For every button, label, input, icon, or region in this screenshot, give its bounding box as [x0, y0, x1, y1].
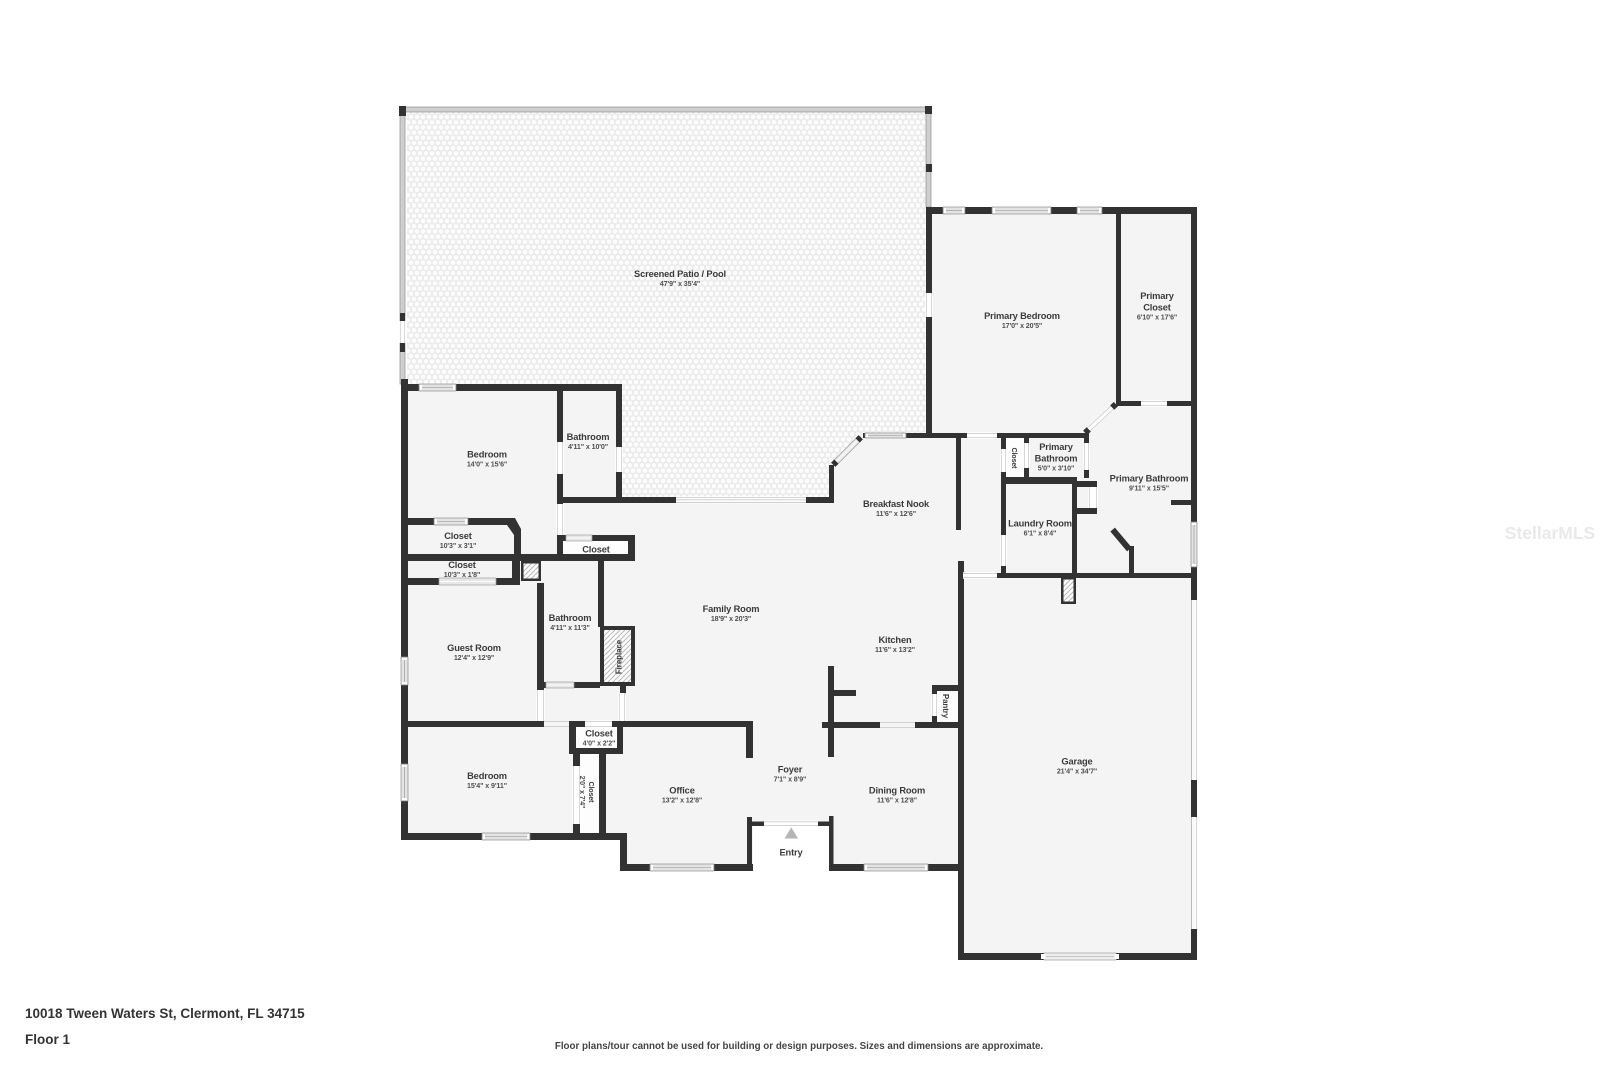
svg-text:5'0" x 3'10": 5'0" x 3'10" [1038, 465, 1075, 473]
svg-text:Closet: Closet [585, 729, 613, 739]
svg-text:Bedroom: Bedroom [467, 450, 507, 460]
svg-text:Kitchen: Kitchen [878, 635, 912, 645]
svg-text:Closet: Closet [582, 545, 610, 555]
svg-text:Closet: Closet [448, 560, 476, 570]
svg-text:Closet: Closet [444, 531, 472, 541]
svg-text:Primary Bathroom: Primary Bathroom [1110, 474, 1189, 484]
svg-text:Bathroom: Bathroom [567, 432, 610, 442]
svg-text:7'1" x 8'9": 7'1" x 8'9" [774, 775, 807, 783]
svg-text:47'9" x 35'4": 47'9" x 35'4" [660, 280, 700, 288]
svg-text:Dining Room: Dining Room [869, 786, 925, 796]
svg-text:14'0" x 15'6": 14'0" x 15'6" [467, 461, 507, 469]
svg-text:Bedroom: Bedroom [467, 771, 507, 781]
svg-text:Primary: Primary [1140, 291, 1175, 301]
svg-text:Closet: Closet [587, 782, 594, 804]
svg-text:18'9" x 20'3": 18'9" x 20'3" [711, 615, 751, 623]
svg-text:Guest Room: Guest Room [447, 643, 501, 653]
svg-text:StellarMLS: StellarMLS [1505, 523, 1595, 543]
svg-text:13'2" x 12'8": 13'2" x 12'8" [662, 797, 702, 805]
svg-text:Family Room: Family Room [703, 604, 760, 614]
svg-text:Screened Patio / Pool: Screened Patio / Pool [634, 269, 726, 279]
svg-text:15'4" x 9'11": 15'4" x 9'11" [467, 782, 507, 790]
svg-text:Breakfast Nook: Breakfast Nook [863, 499, 930, 509]
svg-text:6'1" x 8'4": 6'1" x 8'4" [1024, 529, 1057, 537]
svg-text:Foyer: Foyer [778, 764, 803, 774]
svg-text:Laundry Room: Laundry Room [1008, 518, 1072, 528]
svg-text:Pantry: Pantry [941, 694, 950, 719]
svg-text:10'3" x 1'8": 10'3" x 1'8" [444, 571, 481, 579]
svg-text:11'6" x 12'6": 11'6" x 12'6" [876, 510, 916, 518]
svg-text:17'0" x 20'5": 17'0" x 20'5" [1002, 322, 1042, 330]
svg-text:Bathroom: Bathroom [1035, 454, 1078, 464]
svg-text:4'0" x 2'2": 4'0" x 2'2" [583, 740, 616, 748]
svg-text:Floor 1: Floor 1 [25, 1032, 70, 1047]
svg-text:11'6" x 13'2": 11'6" x 13'2" [875, 646, 915, 654]
svg-text:10018 Tween Waters St, Clermon: 10018 Tween Waters St, Clermont, FL 3471… [25, 1006, 305, 1021]
svg-text:Fireplace: Fireplace [615, 639, 624, 674]
svg-text:2'0" x 7'4": 2'0" x 7'4" [578, 776, 586, 809]
svg-text:4'11" x 10'0": 4'11" x 10'0" [568, 443, 608, 451]
svg-text:6'10" x 17'6": 6'10" x 17'6" [1137, 314, 1177, 322]
svg-text:Bathroom: Bathroom [549, 613, 592, 623]
svg-text:12'4" x 12'9": 12'4" x 12'9" [454, 654, 494, 662]
svg-text:Entry: Entry [779, 848, 803, 858]
svg-text:Office: Office [669, 786, 694, 796]
svg-text:Primary Bedroom: Primary Bedroom [984, 311, 1060, 321]
svg-text:10'3" x 3'1": 10'3" x 3'1" [440, 542, 477, 550]
svg-text:Closet: Closet [1010, 448, 1017, 470]
svg-text:9'11" x 15'5": 9'11" x 15'5" [1129, 485, 1169, 493]
svg-text:Floor plans/tour cannot be use: Floor plans/tour cannot be used for buil… [555, 1041, 1044, 1052]
svg-text:4'11" x 11'3": 4'11" x 11'3" [550, 624, 590, 632]
svg-text:11'6" x 12'8": 11'6" x 12'8" [877, 797, 917, 805]
svg-text:Garage: Garage [1061, 757, 1092, 767]
svg-text:21'4" x 34'7": 21'4" x 34'7" [1057, 768, 1097, 776]
svg-text:Closet: Closet [1143, 303, 1171, 313]
svg-text:Primary: Primary [1039, 442, 1074, 452]
